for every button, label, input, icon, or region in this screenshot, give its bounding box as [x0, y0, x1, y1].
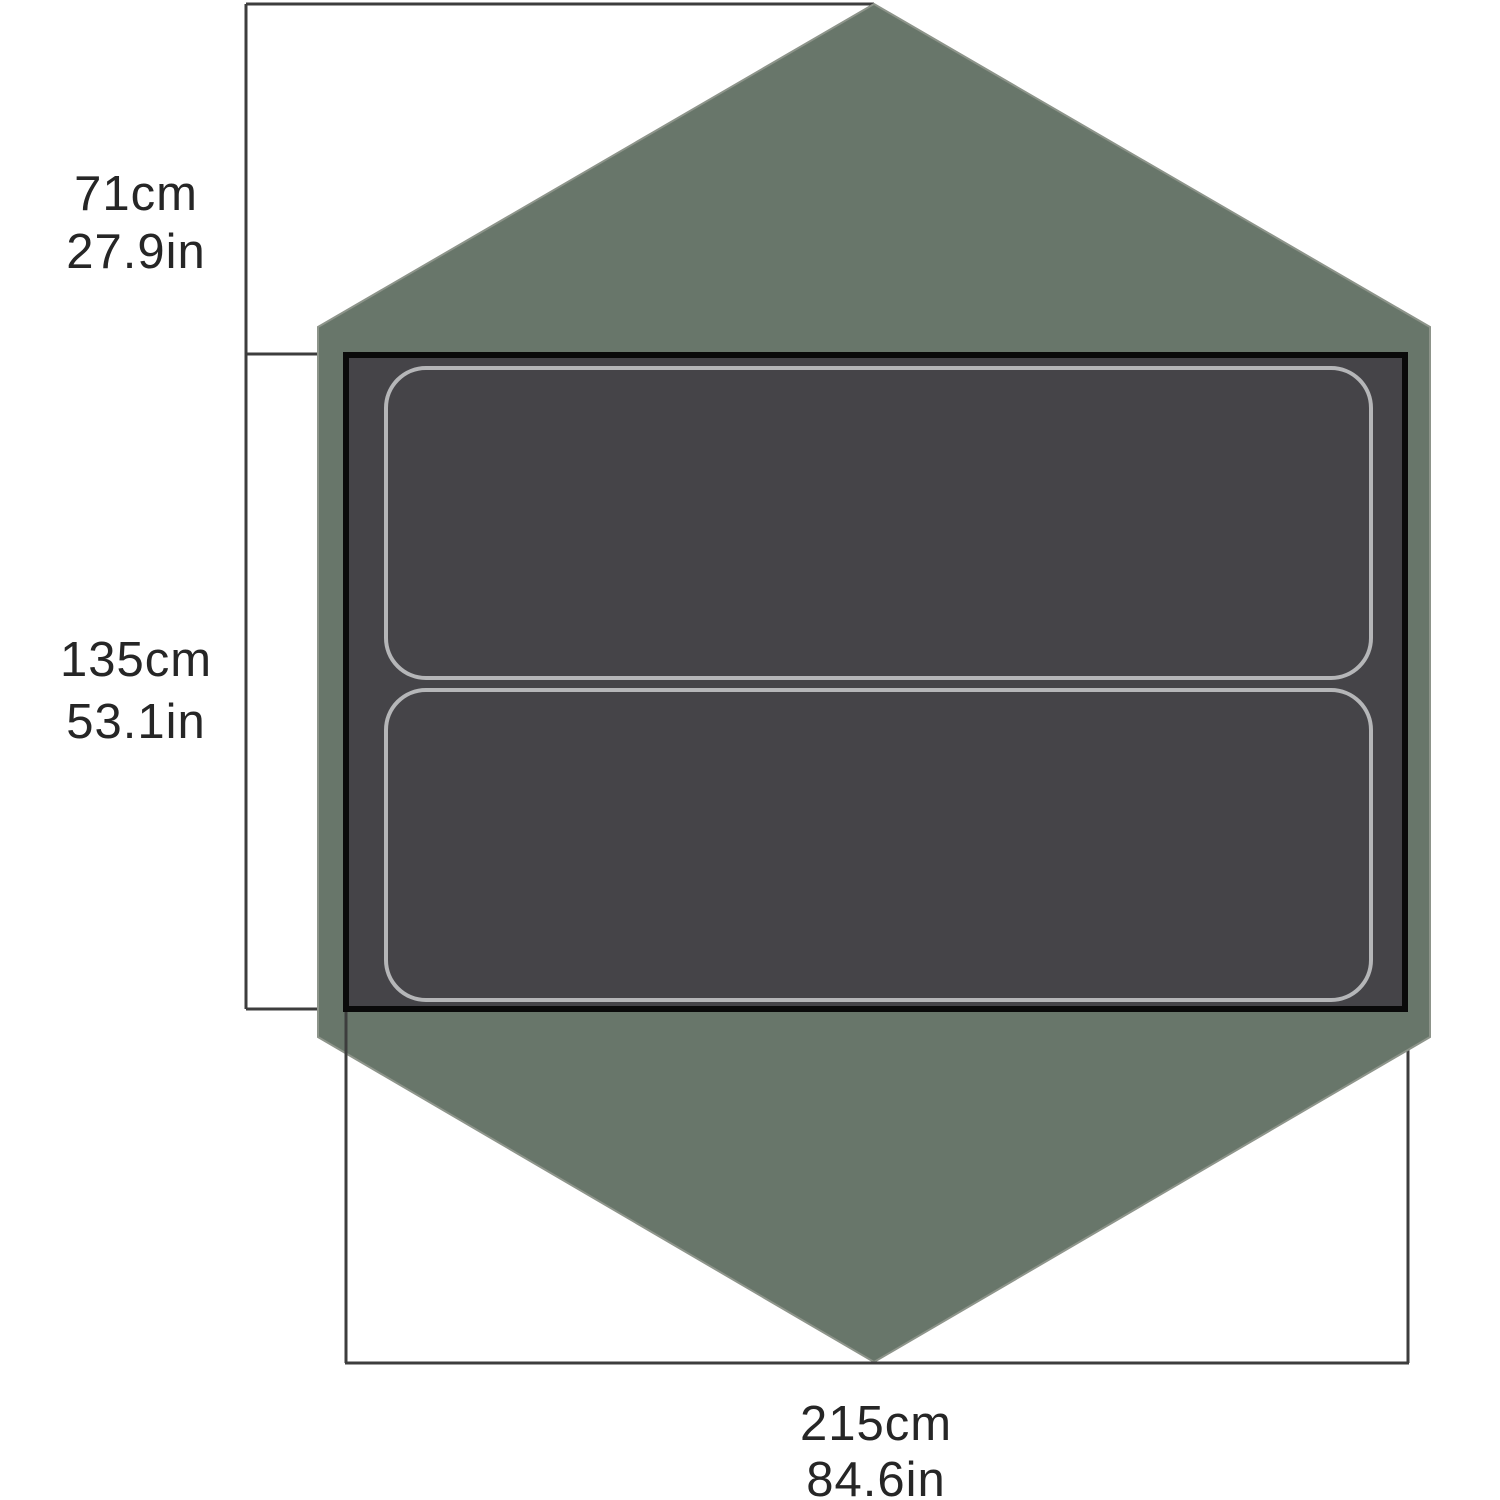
- tent-floor: [346, 355, 1405, 1009]
- dimension-diagram: 71cm 27.9in 135cm 53.1in 215cm 84.6in: [0, 0, 1500, 1500]
- tent-footprint-diagram-canvas: 71cm 27.9in 135cm 53.1in 215cm 84.6in: [0, 0, 1500, 1500]
- floor-width-metric-label: 135cm: [60, 633, 212, 687]
- floor-width-imperial-label: 53.1in: [66, 695, 206, 749]
- floor-length-imperial-label: 84.6in: [806, 1453, 946, 1500]
- floor-length-metric-label: 215cm: [800, 1397, 952, 1451]
- vestibule-depth-imperial-label: 27.9in: [66, 225, 206, 279]
- vestibule-depth-metric-label: 71cm: [74, 167, 198, 221]
